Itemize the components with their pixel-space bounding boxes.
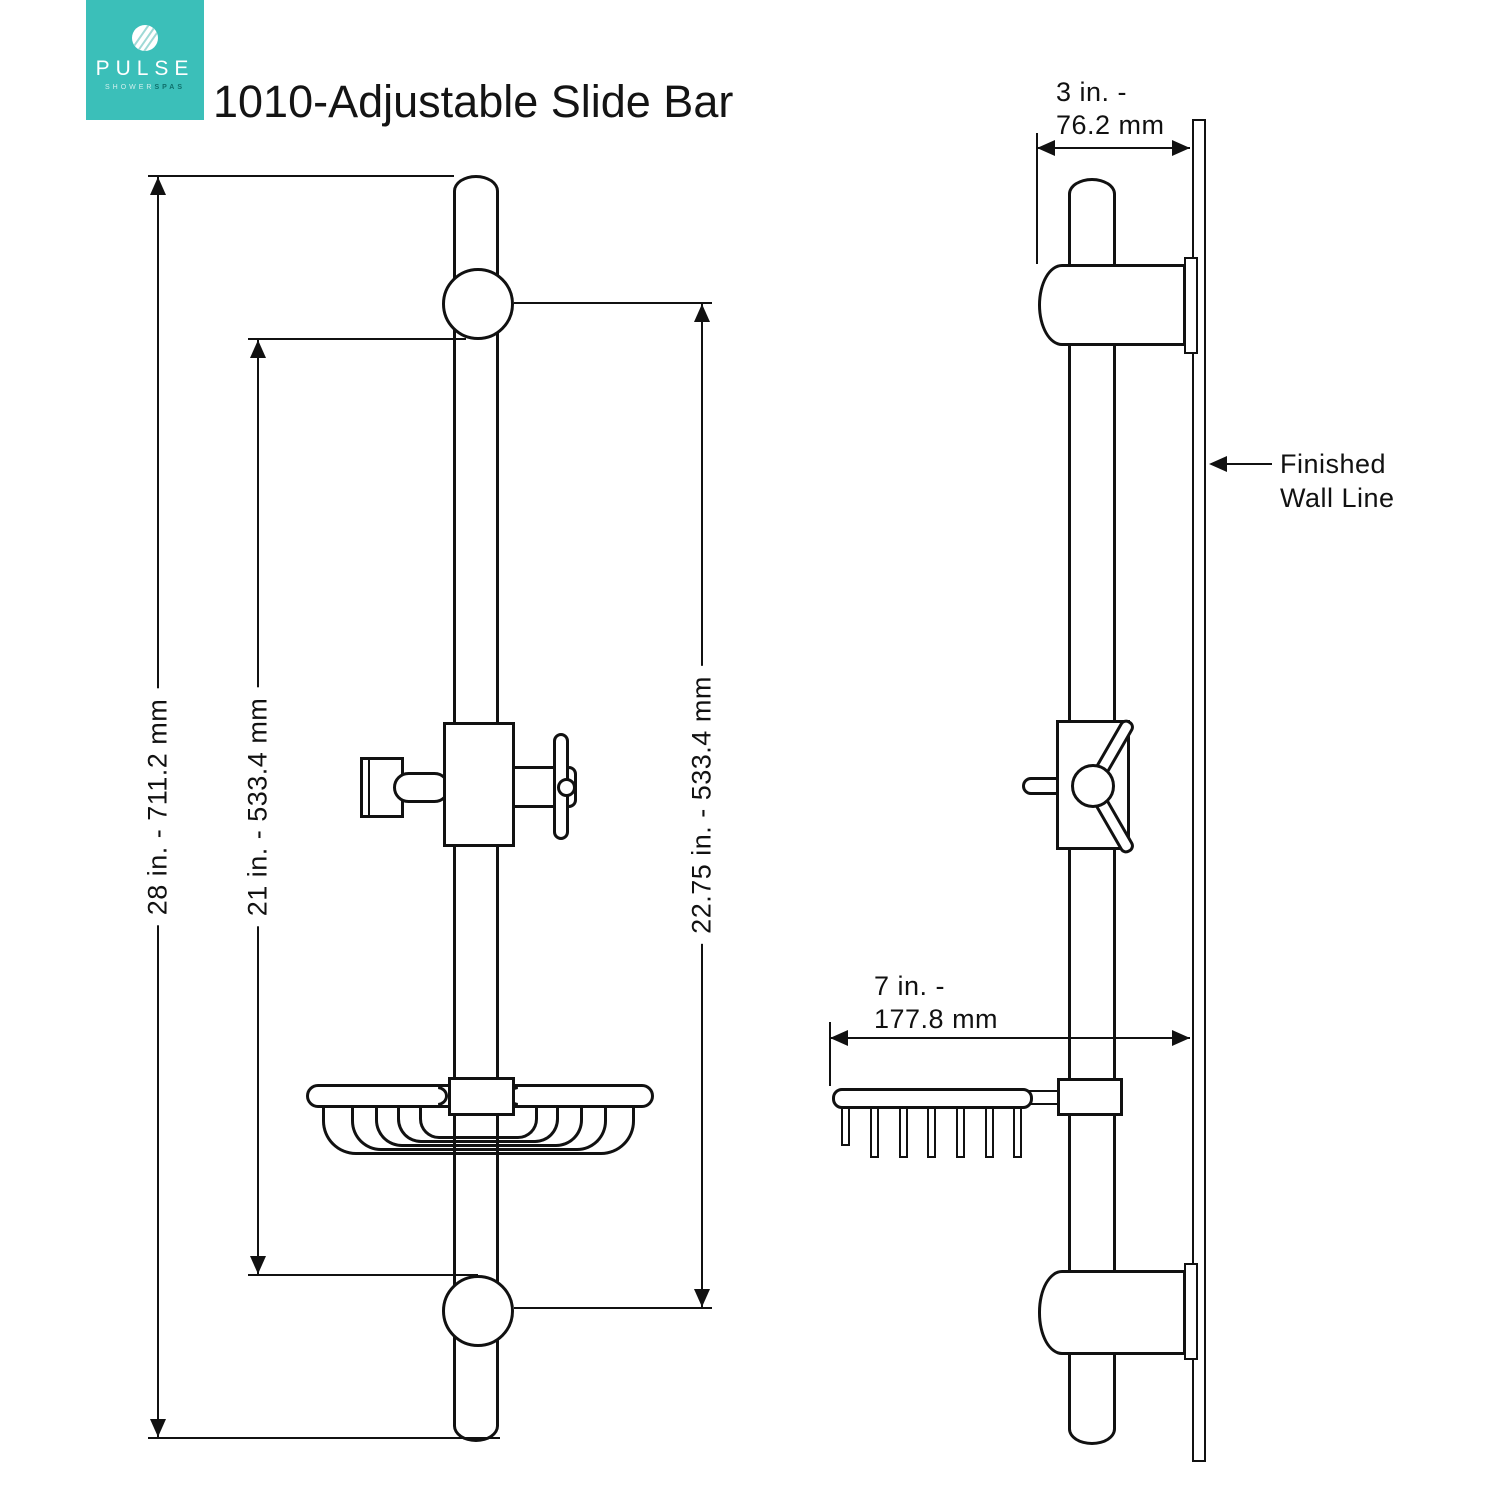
soap-dish-prong: [899, 1106, 908, 1158]
arrow-right-icon: [1172, 140, 1190, 156]
dimension-line-7in: [830, 1037, 1190, 1039]
dim-label-depth: 3 in. - 76.2 mm: [1056, 76, 1165, 142]
arrow-left-icon: [1209, 456, 1227, 472]
front-slider-body: [443, 722, 515, 847]
soap-dish-mount-clamp: [448, 1077, 515, 1116]
dim-depth-line2: 76.2 mm: [1056, 109, 1165, 142]
logo-brand-text: PULSE: [86, 57, 204, 81]
front-holder-edge-line: [368, 759, 370, 816]
logo-subtitle-shower: SHOWER: [105, 84, 155, 91]
dim-label-travel: 22.75 in. - 533.4 mm: [681, 666, 724, 944]
arrow-up-icon: [150, 177, 166, 195]
extension-line: [148, 1437, 500, 1439]
soap-dish-side-tray: [832, 1088, 1033, 1109]
wall-line-label: Finished Wall Line: [1280, 447, 1395, 515]
arrow-left-icon: [830, 1030, 848, 1046]
front-top-mount-bracket: [442, 268, 514, 340]
dim-label-overall: 28 in. - 711.2 mm: [137, 689, 180, 926]
soap-dish-prong: [1013, 1106, 1022, 1158]
extension-line: [248, 338, 466, 340]
arrow-down-icon: [694, 1289, 710, 1307]
logo-subtitle-spas: SPAS: [154, 84, 185, 91]
extension-line: [148, 175, 454, 177]
wall-label-line2: Wall Line: [1280, 481, 1395, 515]
dim-basket-line1: 7 in. -: [874, 970, 998, 1003]
dimension-line-3in: [1037, 147, 1190, 149]
front-holder-arm: [393, 772, 450, 803]
side-top-wall-flange: [1184, 257, 1198, 354]
extension-line: [514, 1307, 712, 1309]
dim-label-basket: 7 in. - 177.8 mm: [874, 970, 998, 1036]
front-bottom-mount-bracket: [442, 1275, 514, 1347]
logo-subtitle: SHOWERSPAS: [86, 84, 204, 91]
dim-label-inner: 21 in. - 533.4 mm: [237, 688, 280, 927]
front-handle-knob: [557, 778, 576, 797]
side-bottom-wall-flange: [1184, 1263, 1198, 1360]
soap-dish-prong: [985, 1106, 994, 1158]
water-drop-icon: [132, 25, 158, 51]
side-bottom-mount-arm: [1038, 1270, 1186, 1355]
arrow-down-icon: [150, 1419, 166, 1437]
soap-dish-side-clamp: [1057, 1078, 1123, 1116]
side-top-mount-arm: [1038, 264, 1186, 346]
extension-line: [248, 1274, 478, 1276]
arrow-right-icon: [1172, 1030, 1190, 1046]
side-handle-hub: [1071, 764, 1115, 808]
wall-label-line1: Finished: [1280, 447, 1395, 481]
soap-dish-prong: [927, 1106, 936, 1158]
soap-dish-prong: [870, 1106, 879, 1158]
extension-line: [514, 302, 712, 304]
soap-dish-prong: [841, 1106, 850, 1146]
arrow-up-icon: [250, 340, 266, 358]
dim-basket-line2: 177.8 mm: [874, 1003, 998, 1036]
soap-dish-prong: [956, 1106, 965, 1158]
technical-drawing-page: PULSE SHOWERSPAS 1010-Adjustable Slide B…: [0, 0, 1500, 1500]
arrow-left-icon: [1037, 140, 1055, 156]
pulse-logo: PULSE SHOWERSPAS: [86, 0, 204, 120]
dim-depth-line1: 3 in. -: [1056, 76, 1165, 109]
arrow-down-icon: [250, 1256, 266, 1274]
arrow-up-icon: [694, 304, 710, 322]
page-title: 1010-Adjustable Slide Bar: [213, 76, 733, 128]
